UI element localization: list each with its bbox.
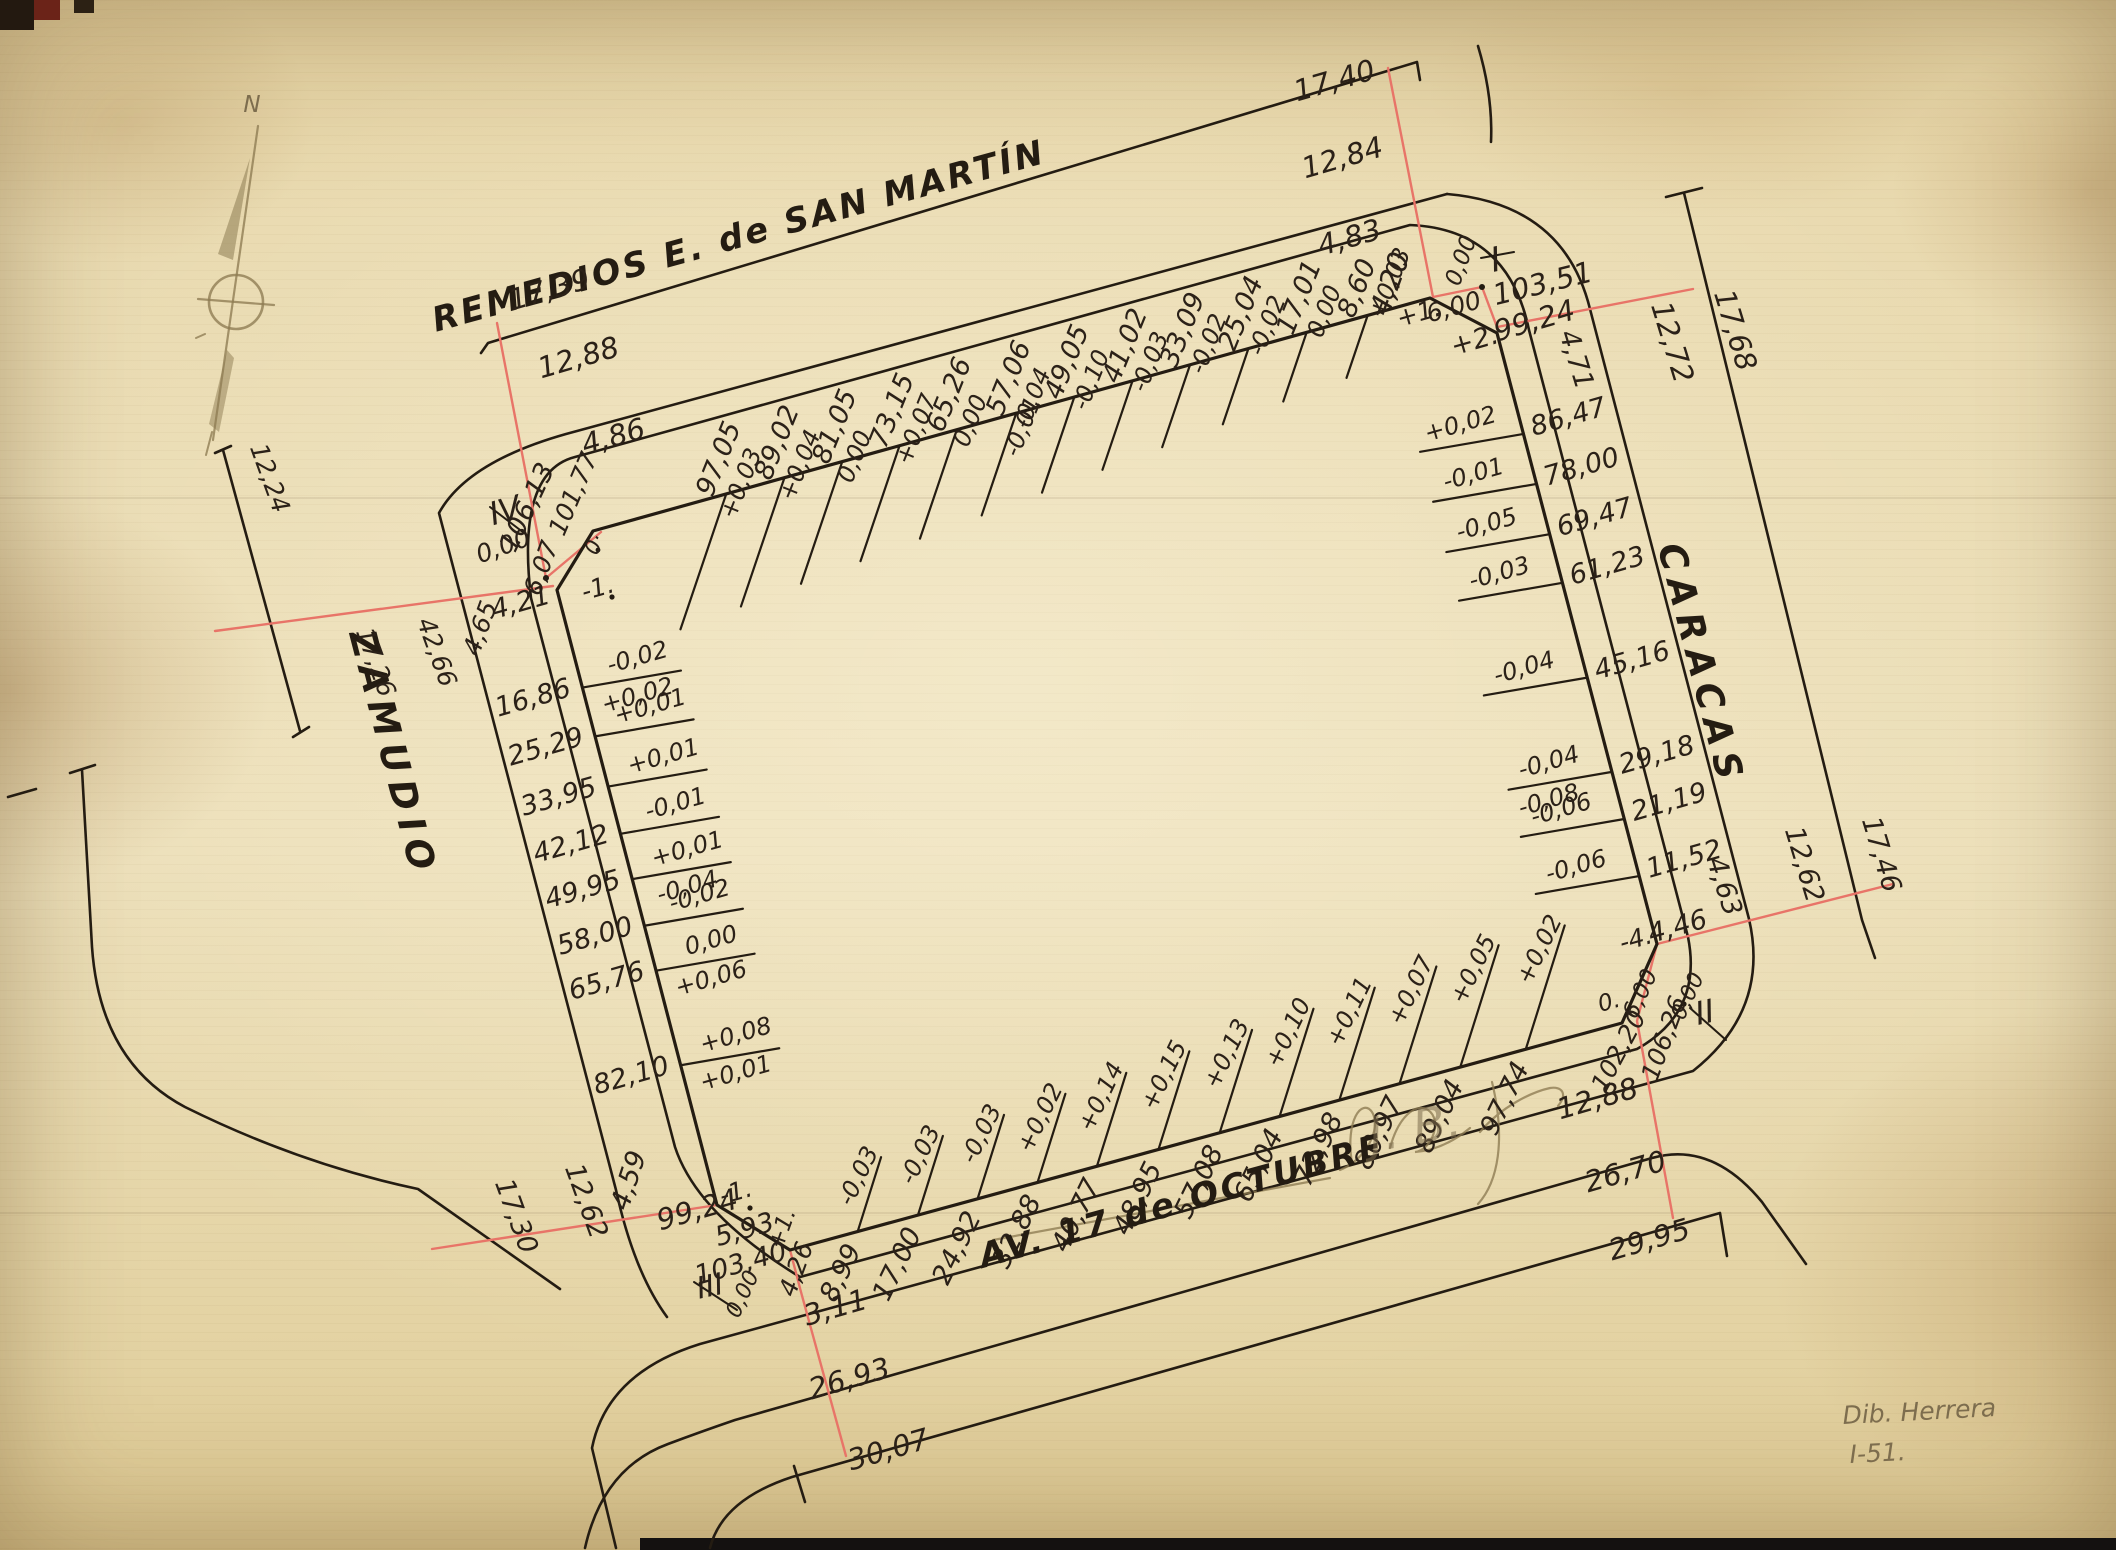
map-label: 0· [580,530,610,558]
map-label: 12,24 [244,440,296,517]
map-label: 17,40 [1290,53,1379,109]
tick-correction-label: +0,13 [1198,1015,1255,1093]
map-label: 4,63 [1700,853,1748,920]
generated-labels: 8,60+0,0317,010,0025,04-0,0233,09-0,0241… [243,53,1996,1478]
tick-correction-label: -0,04 [1490,645,1557,689]
tick-distance-label: 45,16 [1591,635,1674,686]
far-left-edge-sliver [8,789,36,797]
map-label: -1. [578,569,618,606]
map-label: 3,11 [800,1282,871,1332]
drafter-signature: Dib. Herrera [1842,1393,1997,1430]
tick-correction-label: -0,06 [1542,844,1609,888]
tick-distance-label: 61,23 [1566,540,1649,591]
map-label: 26,93 [805,1351,894,1407]
measurement-tick [1102,381,1132,470]
top-right-curb-curve [1478,46,1491,142]
tick-correction-label: +0,07 [1382,951,1440,1030]
tick-correction-label: +0,11 [1321,972,1378,1050]
tick-distance-label: 21,19 [1628,777,1711,828]
map-label: 0,00 [1440,232,1482,289]
far-left-corner-curb [70,765,560,1289]
compass-north-label: N [243,92,260,118]
scanned-survey-plan: 8,60+0,0317,010,0025,04-0,0233,09-0,0241… [0,0,2116,1550]
measurement-tick [920,430,957,539]
tick-correction-label: -0,03 [894,1121,946,1189]
tick-distance-label: 86,47 [1527,392,1610,443]
compass-tail-feather [209,350,234,432]
measurement-tick [1283,332,1306,401]
street-lines [8,46,1875,1548]
map-label: 26,70 [1581,1144,1670,1200]
map-label: 17,46 [1855,813,1907,896]
map-label: 29,95 [1605,1212,1694,1268]
tick-correction-label: +0,02 [1011,1078,1068,1156]
map-label: -1. [716,1173,756,1210]
map-label: 4,46 [1644,904,1710,950]
measurement-tick [1223,349,1249,425]
map-label: 4,71 [1553,326,1600,393]
compass-rose [196,126,274,455]
map-label: 4,83 [1314,212,1385,262]
measurement-tick [1162,365,1190,447]
tick-distance-label: 29,18 [1615,729,1698,780]
tick-correction-label: -0,03 [832,1142,884,1210]
tick-correction-label: 0,00 [681,919,740,961]
map-label: 101,77 [543,448,604,540]
map-label: 12,72 [1644,297,1701,386]
compass-tail-tip [196,334,212,455]
tick-distance-label: 78,00 [1540,442,1623,493]
measurement-tick [1347,315,1368,378]
tick-correction-label: +0,02 [1510,910,1567,988]
map-label: 17,68 [1707,285,1764,374]
tick-correction-label: +0,10 [1259,993,1316,1071]
tick-correction-label: -0,05 [1453,502,1520,546]
map-label: 30,07 [844,1421,934,1477]
tick-correction-label: +0,05 [1444,930,1501,1008]
map-label: 0,00 [472,523,534,569]
map-label: 12,88 [534,330,623,386]
tick-correction-label: -0,02 [604,635,671,679]
drafter-code: I-51. [1849,1437,1907,1469]
survey-dot [747,1205,752,1210]
corner-marker-I: I [1487,240,1505,281]
corner-marker-II: II [1692,992,1718,1033]
tick-correction-label: +0,14 [1072,1058,1129,1136]
map-label: 12,84 [1298,130,1387,186]
tick-distance-label: 69,47 [1553,492,1636,543]
map-label: 12,62 [1778,823,1830,906]
map-label: 42,66 [411,614,463,691]
measurement-tick [1042,397,1074,493]
map-label: 4,59 [605,1147,653,1214]
tick-correction-label: -0,03 [955,1100,1007,1168]
tick-distance-label: 17,00 [867,1223,929,1306]
survey-plan-drawing: 8,60+0,0317,010,0025,04-0,0233,09-0,0241… [0,0,2116,1550]
survey-dot [1479,284,1485,290]
tick-correction-label: +0,15 [1135,1036,1192,1114]
tick-correction-label: -0,01 [642,781,709,825]
tick-correction-label: -0,04 [1515,740,1582,784]
handwritten-initials: J. B. [1356,1093,1465,1166]
tick-correction-label: -0,01 [1440,452,1507,496]
tick-distance-label: 97,74 [1474,1057,1536,1140]
tick-correction-label: -0,03 [1466,551,1533,595]
